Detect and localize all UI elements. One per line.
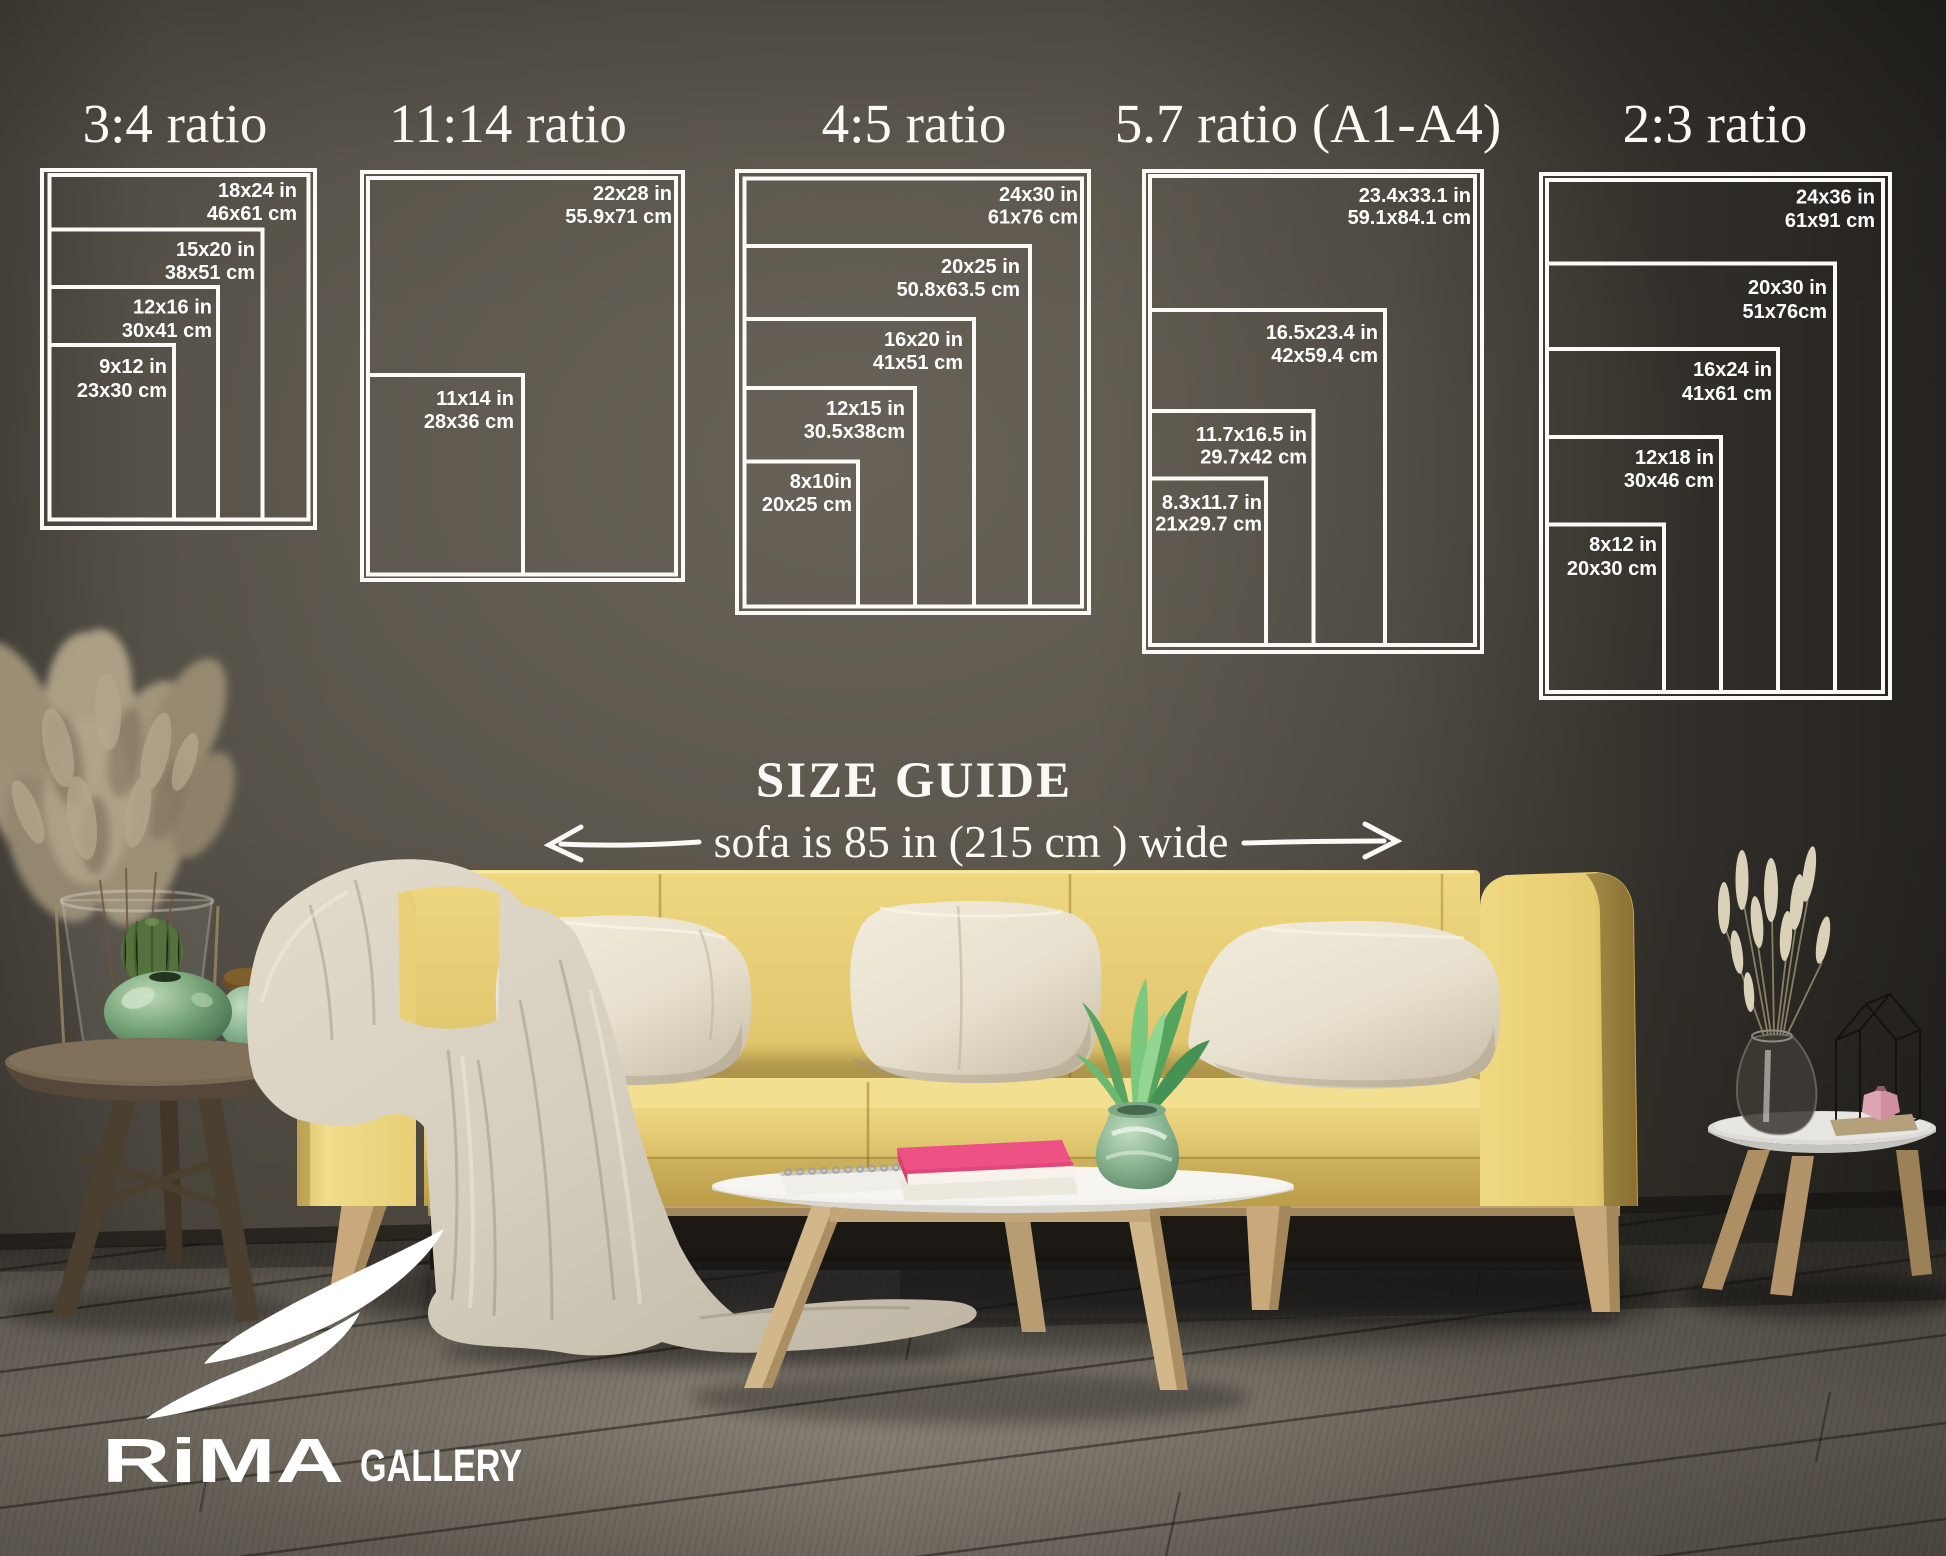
svg-text:GALLERY: GALLERY	[360, 1440, 522, 1491]
svg-text:RiMA: RiMA	[102, 1427, 344, 1496]
